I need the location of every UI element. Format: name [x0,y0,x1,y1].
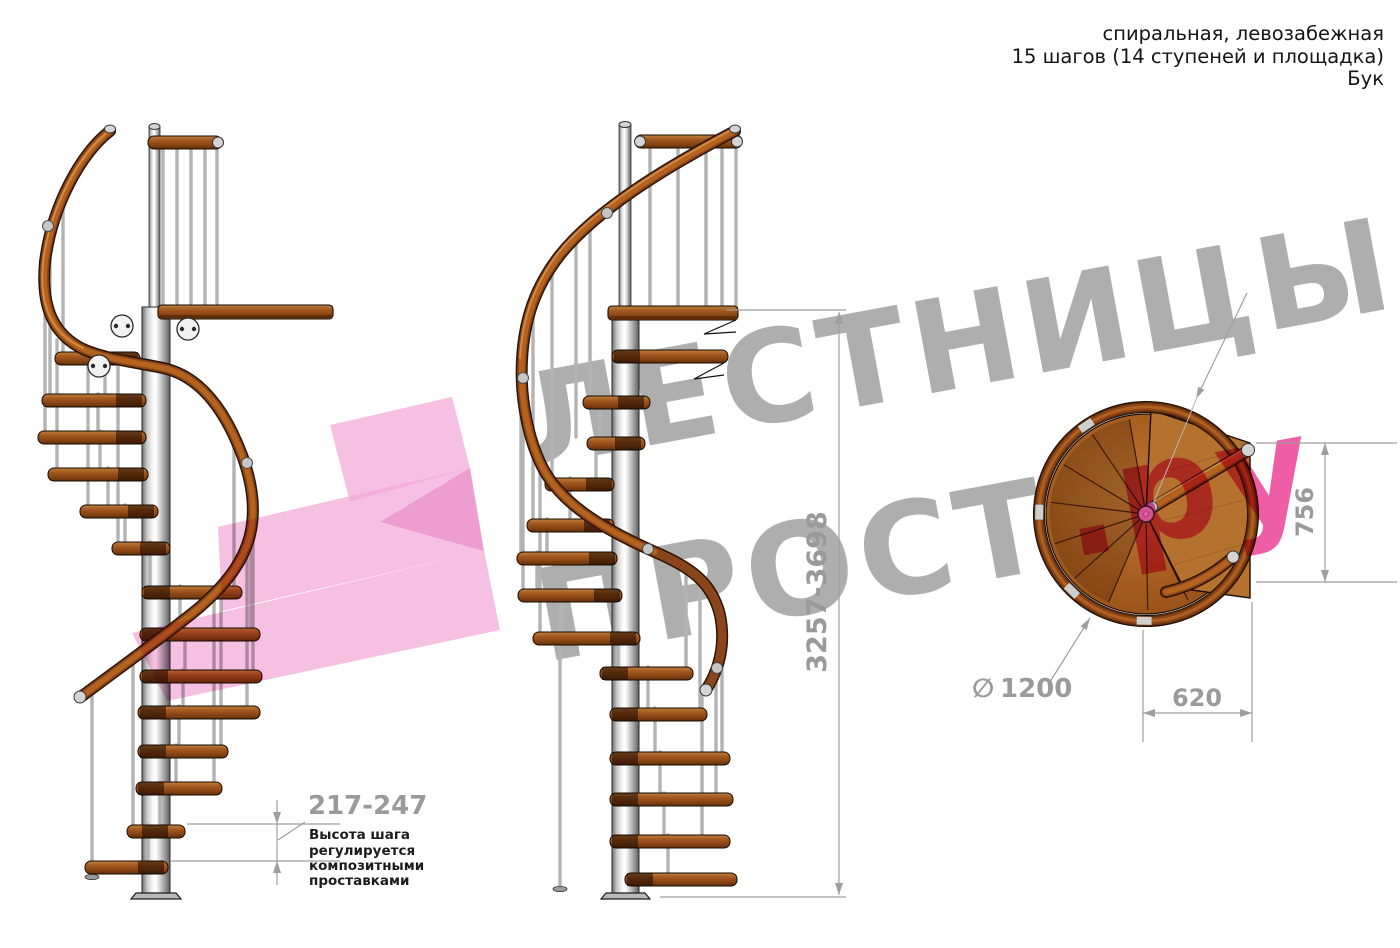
drawing-canvas: ЛЕСТНИЦЫ ПРОСТО [0,0,1400,948]
middle-pole-cap [619,122,631,128]
left-handrail-connector-icon [242,458,253,469]
brand-arrow-logo [132,397,500,701]
dim-plan-depth-label: 756 [1291,487,1319,537]
dim-diameter: ∅ 1200 [972,618,1090,704]
middle-landing-platform [608,306,738,320]
note-line-4: проставками [309,873,410,889]
header-line-3: Бук [1347,67,1384,90]
header-line-2: 15 шагов (14 ступеней и площадка) [1012,45,1384,68]
dim-total-height-label: 3257-3698 [802,511,833,673]
left-landing-platform [158,305,333,319]
left-handrail-end-cap [74,691,86,703]
note-line-2: регулируется [309,843,415,859]
middle-handrail-connector-icon [712,663,723,674]
left-pole [142,307,170,893]
left-handrail-connector-icon [43,221,54,232]
staircase-side-view-middle [517,122,743,900]
left-pole-cap [149,124,160,130]
note-line-1: Высота шага [309,827,410,843]
middle-handrail-connector-icon [643,544,654,555]
drawing-header: спиральная, левозабежная 15 шагов (14 ст… [1012,22,1385,90]
dim-step-height: 217-247 Высота шага регулируется компози… [170,791,427,889]
watermark-suffix: .ру [1046,383,1326,592]
left-pole-upper [149,126,160,309]
header-line-1: спиральная, левозабежная [1103,22,1384,45]
left-pole-base-flange [131,893,181,899]
middle-handrail-connector-icon [518,373,529,384]
dim-plan-width-label: 620 [1172,684,1222,712]
dim-diameter-label: 1200 [1000,674,1072,704]
middle-handrail-connector-icon [602,208,613,219]
middle-pole-upper [619,124,631,309]
dim-diameter-symbol: ∅ [972,674,994,704]
dim-step-height-label: 217-247 [308,791,427,821]
middle-handrail-end-cap [700,684,712,696]
technical-drawing: ЛЕСТНИЦЫ ПРОСТО [0,0,1400,948]
note-line-3: композитными [309,858,424,874]
middle-pole-base-flange [601,893,650,899]
